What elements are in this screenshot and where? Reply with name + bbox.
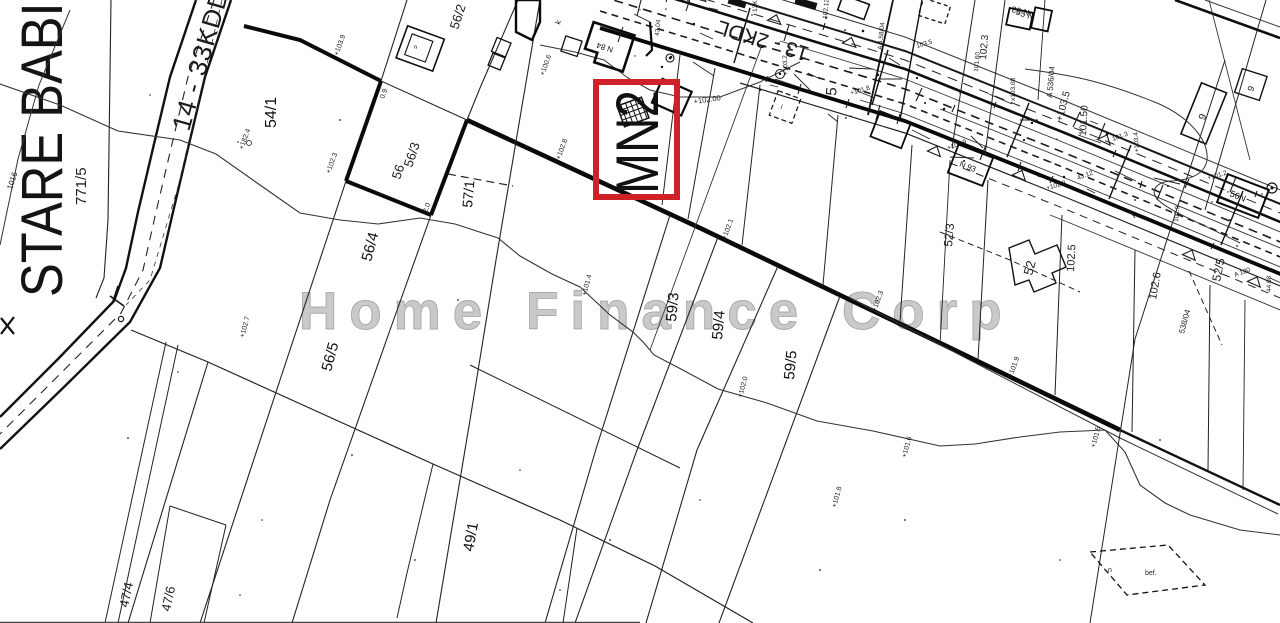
svg-text:43.04: 43.04 <box>654 19 662 36</box>
svg-text:59/3: 59/3 <box>663 292 682 323</box>
svg-text:59/5: 59/5 <box>781 350 800 381</box>
svg-text:101.50: 101.50 <box>1078 105 1091 137</box>
svg-text:54/1: 54/1 <box>263 97 280 128</box>
svg-text:5: 5 <box>823 87 841 97</box>
svg-text:52/3: 52/3 <box>941 222 957 247</box>
svg-text:13KD: 13KD <box>752 0 759 12</box>
svg-text:44.08: 44.08 <box>1266 275 1273 292</box>
svg-text:x103.08: x103.08 <box>1010 77 1017 101</box>
svg-text:102.5: 102.5 <box>1065 244 1078 272</box>
svg-text:+103.4: +103.4 <box>1133 131 1141 152</box>
svg-text:STARE BABICE: STARE BABICE <box>10 0 75 297</box>
svg-text:771/5: 771/5 <box>73 167 90 205</box>
svg-text:57/1: 57/1 <box>459 180 477 209</box>
svg-text:102.3: 102.3 <box>978 34 991 60</box>
svg-text:MN2: MN2 <box>604 90 671 194</box>
svg-text:59/4: 59/4 <box>709 310 728 341</box>
svg-text:n: n <box>1108 567 1112 574</box>
svg-text:bef.: bef. <box>1145 570 1157 577</box>
